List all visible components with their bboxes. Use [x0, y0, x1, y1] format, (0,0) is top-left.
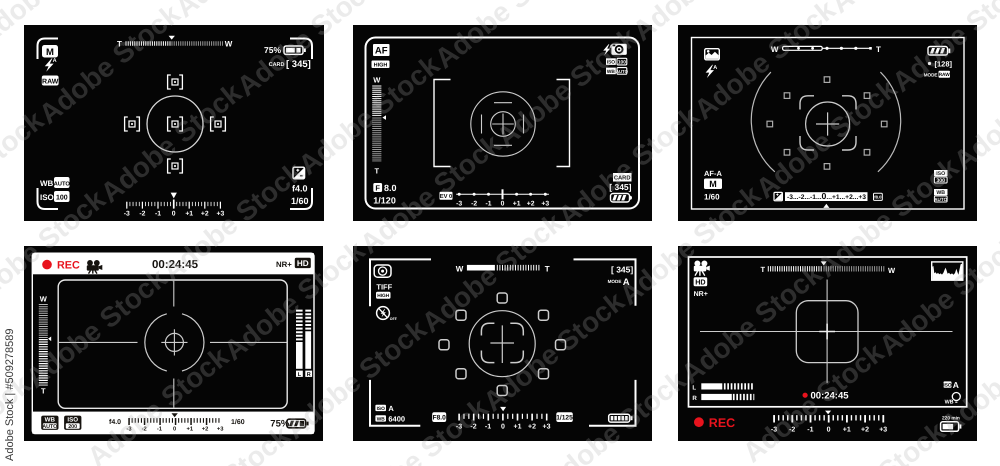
svg-text:Adobe Stock | #509278589: Adobe Stock | #509278589: [4, 328, 16, 461]
svg-text:Adobe Stock: Adobe Stock: [627, 0, 780, 47]
svg-text:Adobe Stock: Adobe Stock: [688, 0, 841, 126]
svg-text:Adobe Stock: Adobe Stock: [490, 21, 643, 153]
svg-text:Adobe Stock: Adobe Stock: [737, 336, 890, 466]
svg-text:Adobe Stock: Adobe Stock: [341, 392, 494, 466]
svg-text:Adobe Stock: Adobe Stock: [33, 0, 186, 130]
svg-text:Adobe Stock: Adobe Stock: [675, 258, 828, 390]
svg-text:Adobe Stock: Adobe Stock: [354, 128, 507, 260]
svg-text:Adobe Stock: Adobe Stock: [293, 49, 446, 181]
svg-text:Adobe Stock: Adobe Stock: [825, 0, 978, 19]
svg-text:Adobe Stock: Adobe Stock: [416, 207, 569, 339]
svg-text:Adobe Stock: Adobe Stock: [873, 230, 1000, 362]
svg-text:Adobe Stock: Adobe Stock: [812, 151, 965, 283]
svg-text:Adobe Stock: Adobe Stock: [95, 77, 248, 209]
svg-text:Adobe Stock: Adobe Stock: [798, 415, 951, 466]
svg-text:Adobe Stock: Adobe Stock: [886, 0, 1000, 98]
svg-text:Adobe Stock: Adobe Stock: [539, 364, 692, 466]
svg-text:Adobe Stock: Adobe Stock: [477, 285, 630, 417]
svg-text:Adobe Stock: Adobe Stock: [218, 234, 371, 366]
svg-text:Adobe Stock: Adobe Stock: [143, 420, 296, 466]
svg-text:Adobe Stock: Adobe Stock: [750, 72, 903, 204]
svg-text:Adobe Stock: Adobe Stock: [935, 309, 1000, 441]
svg-text:Adobe Stock: Adobe Stock: [20, 262, 173, 394]
svg-text:Adobe Stock: Adobe Stock: [231, 0, 384, 102]
svg-text:Adobe Stock: Adobe Stock: [156, 155, 309, 287]
svg-text:Adobe Stock: Adobe Stock: [0, 183, 111, 315]
svg-text:Adobe Stock: Adobe Stock: [82, 341, 235, 466]
svg-text:Adobe Stock: Adobe Stock: [169, 0, 322, 23]
svg-text:Adobe Stock: Adobe Stock: [429, 0, 582, 74]
svg-text:Adobe Stock: Adobe Stock: [0, 104, 50, 236]
svg-text:Adobe Stock: Adobe Stock: [614, 179, 767, 311]
svg-text:Adobe Stock: Adobe Stock: [948, 45, 1000, 177]
svg-text:Adobe Stock: Adobe Stock: [279, 313, 432, 445]
svg-text:Adobe Stock: Adobe Stock: [0, 0, 124, 51]
svg-text:Adobe Stock: Adobe Stock: [552, 100, 705, 232]
